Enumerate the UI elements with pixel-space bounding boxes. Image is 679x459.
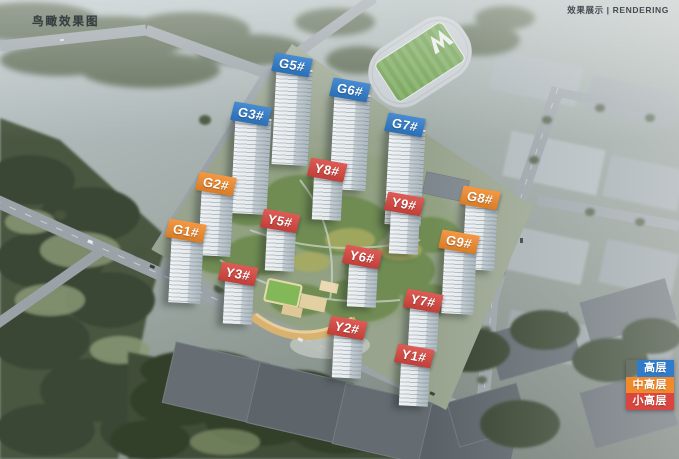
building-g3 [231, 117, 272, 215]
legend: 高层中高层小高层 [626, 360, 675, 410]
building-g2 [198, 187, 234, 257]
legend-item-small-high-rise: 小高层 [626, 393, 675, 410]
view-title: 鸟瞰效果图 [32, 13, 100, 29]
aerial-rendering: G5#G6#G3#G7#Y8#G2#G8#Y9#Y5#G1#G9#Y6#Y3#Y… [0, 0, 679, 459]
building-g1 [168, 234, 204, 304]
legend-item-mid-high-rise: 中高层 [626, 377, 675, 394]
legend-item-high-rise: 高层 [637, 360, 674, 377]
render-caption: 效果展示 | RENDERING [567, 4, 669, 16]
building-g5 [272, 68, 313, 166]
aerial-scene [0, 0, 679, 459]
building-g9 [441, 245, 477, 315]
